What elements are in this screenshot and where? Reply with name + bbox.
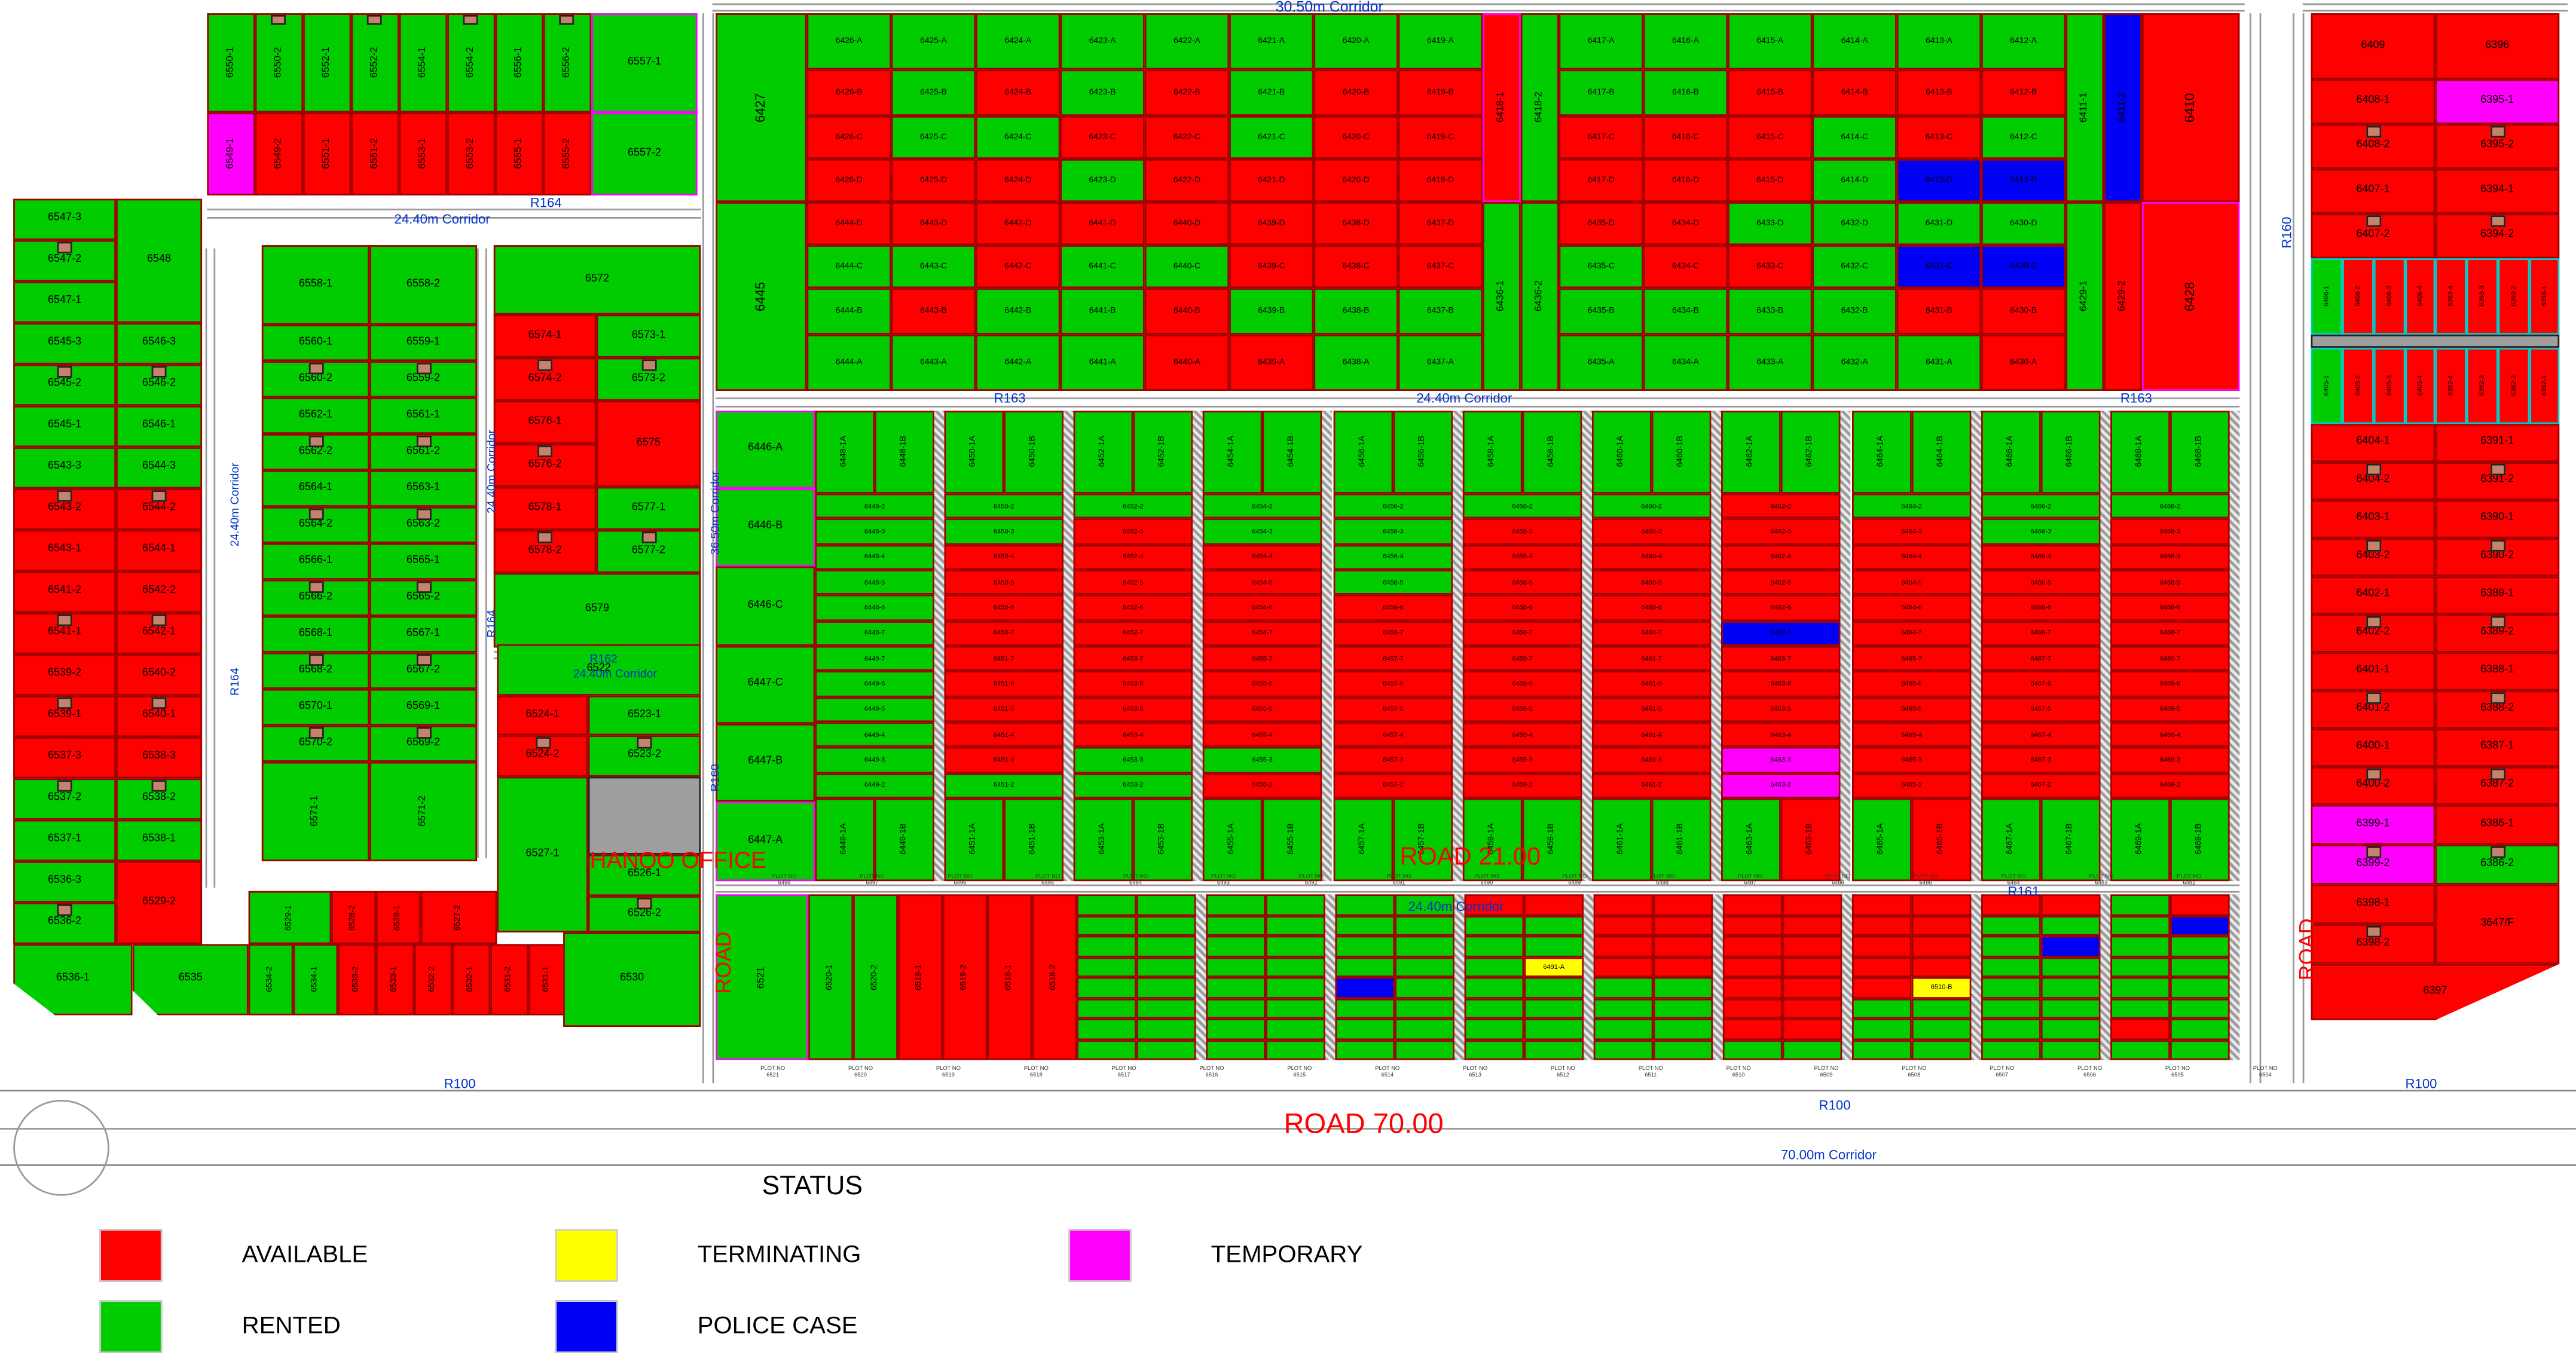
plot-6454-3: 6454-3: [1203, 519, 1322, 544]
substation-marker: [416, 436, 431, 446]
plot-6566-1: 6566-1: [262, 543, 369, 580]
plot-6402-2: 6402-2: [2311, 614, 2436, 653]
plot-6449-7: 6449-7: [815, 646, 934, 671]
plot-6465-6: 6465-6: [1852, 671, 1972, 696]
plot-6453-4: 6453-4: [1074, 722, 1193, 747]
plot-6532-1: 6532-1: [452, 944, 490, 1015]
substation-marker: [2490, 464, 2505, 475]
plot-6464-3: 6464-3: [1852, 519, 1972, 544]
plot-6450-1B: 6450-1B: [1004, 411, 1064, 494]
road-label: 24.40m Corridor: [1408, 901, 1504, 914]
plot-6463-3: 6463-3: [1721, 748, 1841, 773]
substation-marker: [152, 780, 167, 791]
plot-unlabeled: [1266, 998, 1325, 1019]
plot-no-bottom-label: PLOT NO 6520: [817, 1067, 904, 1080]
plot-6444-B: 6444-B: [806, 288, 891, 335]
plot-6469-7: 6469-7: [2110, 646, 2230, 671]
plot-6466-6: 6466-6: [1981, 595, 2101, 620]
plot-6438-B: 6438-B: [1313, 288, 1398, 335]
plot-6562-1: 6562-1: [262, 397, 369, 434]
plot-6449-4: 6449-4: [815, 722, 934, 747]
plot-unlabeled: [1266, 915, 1325, 936]
plot-6414-A: 6414-A: [1812, 13, 1896, 69]
plot-6537-1: 6537-1: [13, 820, 116, 861]
plot-6518-1: 6518-1: [988, 894, 1032, 1060]
corridor-hatch: [934, 411, 945, 881]
plot-6463-1A: 6463-1A: [1721, 799, 1781, 882]
plot-6424-B: 6424-B: [976, 69, 1060, 116]
road-label: 24.40m Corridor: [230, 463, 242, 546]
plot-6430-B: 6430-B: [1981, 288, 2065, 335]
plot-6456-7: 6456-7: [1334, 620, 1453, 646]
plot-unlabeled: [1912, 1018, 1972, 1039]
plot-unlabeled: [1912, 915, 1972, 936]
substation-marker: [2490, 692, 2505, 703]
plot-6389-1: 6389-1: [2435, 576, 2559, 614]
substation-marker: [535, 737, 550, 748]
plot-6463-2: 6463-2: [1721, 773, 1841, 798]
plot-6451-1A: 6451-1A: [944, 799, 1004, 882]
plot-unlabeled: [1524, 1018, 1584, 1039]
plot-6539-2: 6539-2: [13, 654, 116, 696]
substation-marker: [2366, 926, 2381, 937]
plot-6460-7: 6460-7: [1592, 620, 1712, 646]
substation-marker: [152, 366, 167, 377]
plot-unlabeled: [1912, 936, 1972, 957]
plot-unlabeled: [1266, 956, 1325, 977]
road-label: R100: [444, 1078, 476, 1091]
plot-6553-2: 6553-2: [447, 112, 495, 195]
plot-6433-B: 6433-B: [1728, 288, 1812, 335]
plot-6450-2: 6450-2: [944, 494, 1064, 519]
plot-no-bottom-label: PLOT NO 6510: [1695, 1067, 1783, 1080]
plot-6460-6: 6460-6: [1592, 595, 1712, 620]
substation-marker: [560, 15, 575, 26]
plot-6528-1: 6528-1: [376, 891, 421, 944]
plot-unlabeled: [2170, 894, 2230, 915]
plot-6574-2: 6574-2: [494, 358, 597, 401]
corridor-hatch: [2230, 894, 2240, 1060]
plot-6453-5: 6453-5: [1074, 697, 1193, 722]
plot-6405-3: 6405-3: [2374, 348, 2406, 424]
plot-unlabeled: [1594, 915, 1654, 936]
plot-6435-B: 6435-B: [1559, 288, 1643, 335]
corridor-hatch: [1454, 894, 1465, 1060]
plot-3647-F: 3647/F: [2435, 885, 2559, 964]
plot-6464-5: 6464-5: [1852, 570, 1972, 595]
plot-6557-1: 6557-1: [591, 13, 697, 112]
plot-unlabeled: [1852, 936, 1912, 957]
plot-6421-B: 6421-B: [1229, 69, 1313, 116]
plot-unlabeled: [1723, 956, 1783, 977]
temporary-swatch: [1068, 1228, 1131, 1281]
plot-6418-2: 6418-2: [1521, 13, 1559, 202]
plot-6408-1: 6408-1: [2311, 79, 2436, 124]
plot-6436-2: 6436-2: [1521, 202, 1559, 391]
plot-6445: 6445: [716, 202, 806, 391]
plot-6555-2: 6555-2: [543, 112, 591, 195]
road-label: ROAD 21.00: [1399, 845, 1541, 870]
plot-6548: 6548: [116, 199, 202, 323]
plot-no-bottom-label: PLOT NO 6508: [1870, 1067, 1958, 1080]
road-label: 24.40m Corridor: [1416, 393, 1512, 406]
plot-6462-2: 6462-2: [1721, 494, 1841, 519]
plot-6420-B: 6420-B: [1313, 69, 1398, 116]
plot-6411-2: 6411-2: [2104, 13, 2142, 202]
plot-6451-2: 6451-2: [944, 773, 1064, 798]
plot-6410: 6410: [2142, 13, 2239, 202]
corridor-hatch: [1713, 894, 1723, 1060]
legend-item-terminating: TERMINATING: [555, 1229, 1068, 1280]
plot-6468-7: 6468-7: [2110, 620, 2230, 646]
plot-6527-1: 6527-1: [497, 777, 588, 932]
plot-unlabeled: [1852, 998, 1912, 1019]
plot-6531-1: 6531-1: [528, 944, 567, 1015]
corridor-hatch: [1841, 411, 1851, 881]
plot-6413-A: 6413-A: [1897, 13, 1981, 69]
plot-unlabeled: [1594, 894, 1654, 915]
plot-unlabeled: [1136, 1039, 1196, 1060]
plot-no-bottom-label: PLOT NO 6511: [1607, 1067, 1695, 1080]
plot-unlabeled: [1783, 1039, 1842, 1060]
plot-6465-1A: 6465-1A: [1852, 799, 1912, 882]
plot-6532-2: 6532-2: [414, 944, 453, 1015]
plot-unlabeled: [1077, 936, 1136, 957]
plot-6431-D: 6431-D: [1897, 202, 1981, 245]
substation-marker: [152, 698, 167, 708]
plot-6570-2: 6570-2: [262, 726, 369, 762]
plot-6567-2: 6567-2: [369, 653, 477, 689]
plot-6461-6: 6461-6: [1592, 671, 1712, 696]
plot-no-top-label: PLOT NO 6498: [741, 874, 829, 888]
plot-6461-7: 6461-7: [1592, 646, 1712, 671]
plot-6416-A: 6416-A: [1643, 13, 1728, 69]
plot-6455-2: 6455-2: [1203, 773, 1322, 798]
plot-6571-2: 6571-2: [369, 762, 477, 861]
plot-6407-1: 6407-1: [2311, 169, 2436, 214]
substation-marker: [537, 445, 552, 456]
legend-title: STATUS: [762, 1173, 863, 1203]
plot-6568-1: 6568-1: [262, 616, 369, 653]
plot-unlabeled: [1653, 894, 1713, 915]
corridor-hatch: [1711, 411, 1721, 881]
plot-6437-D: 6437-D: [1398, 202, 1483, 245]
plot-unlabeled: [1077, 956, 1136, 977]
plot-6451-6: 6451-6: [944, 671, 1064, 696]
plot-6459-4: 6459-4: [1463, 722, 1582, 747]
plot-6454-1A: 6454-1A: [1203, 411, 1263, 494]
plot-6451-1B: 6451-1B: [1004, 799, 1064, 882]
plot-unlabeled: [1852, 915, 1912, 936]
plot-unlabeled: [1783, 936, 1842, 957]
plot-unlabeled: [1594, 977, 1654, 998]
plot-unlabeled: [1912, 998, 1972, 1019]
plot-6417-B: 6417-B: [1559, 69, 1643, 116]
plot-6406-2: 6406-2: [2342, 258, 2374, 334]
plot-6440-A: 6440-A: [1145, 335, 1229, 391]
legend-label: AVAILABLE: [242, 1241, 368, 1268]
plot-6543-1: 6543-1: [13, 530, 116, 571]
plot-6449-6: 6449-6: [815, 671, 934, 696]
corridor-hatch: [1453, 411, 1463, 881]
plot-6468-1A: 6468-1A: [2110, 411, 2170, 494]
plot-6557-2: 6557-2: [591, 112, 697, 195]
plot-no-top-label: PLOT NO 6484: [1970, 874, 2058, 888]
plot-no-top-label: PLOT NO 6493: [1179, 874, 1267, 888]
plot-6572: 6572: [494, 245, 701, 314]
plot-6438-A: 6438-A: [1313, 335, 1398, 391]
plot-6442-C: 6442-C: [976, 245, 1060, 288]
plot-6454-1B: 6454-1B: [1263, 411, 1322, 494]
substation-marker: [57, 780, 72, 791]
plot-6555-1: 6555-1: [496, 112, 543, 195]
plot-6450-5: 6450-5: [944, 570, 1064, 595]
plot-6439-B: 6439-B: [1229, 288, 1313, 335]
plot-6465-4: 6465-4: [1852, 722, 1972, 747]
plot-6529-2: 6529-2: [116, 861, 202, 944]
plot-6420-A: 6420-A: [1313, 13, 1398, 69]
plot-unlabeled: [1206, 1039, 1266, 1060]
substation-marker: [308, 582, 323, 592]
road-label: ROAD 70.00: [1284, 1110, 1444, 1138]
road-label: 24.40m Corridor: [487, 430, 499, 513]
plot-6405-1: 6405-1: [2311, 348, 2343, 424]
plot-6467-1B: 6467-1B: [2041, 799, 2101, 882]
plot-6432-C: 6432-C: [1812, 245, 1896, 288]
plot-6528-2: 6528-2: [331, 891, 376, 944]
plot-6450-4: 6450-4: [944, 545, 1064, 570]
plot-6565-2: 6565-2: [369, 580, 477, 616]
plot-6466-5: 6466-5: [1981, 570, 2101, 595]
plot-6426-D: 6426-D: [806, 159, 891, 202]
plot-6457-2: 6457-2: [1334, 773, 1453, 798]
substation-marker: [57, 242, 72, 253]
plot-6442-B: 6442-B: [976, 288, 1060, 335]
plot-unlabeled: [2170, 1018, 2230, 1039]
plot-no-bottom-label: PLOT NO 6504: [2221, 1067, 2309, 1080]
plot-6457-7: 6457-7: [1334, 646, 1453, 671]
plot-6533-2: 6533-2: [338, 944, 376, 1015]
plot-6542-2: 6542-2: [116, 571, 202, 613]
plot-unlabeled: [1981, 956, 2041, 977]
legend-item-temporary: TEMPORARY: [1068, 1229, 1565, 1280]
plot-6422-C: 6422-C: [1145, 116, 1229, 159]
plot-6453-1A: 6453-1A: [1074, 799, 1133, 882]
road-label: ROAD: [2296, 918, 2318, 980]
plot-6430-A: 6430-A: [1981, 335, 2065, 391]
plot-6407-2: 6407-2: [2311, 213, 2436, 258]
plot-6554-2: 6554-2: [447, 13, 495, 112]
plot-unlabeled: [2110, 936, 2170, 957]
road-label: R160: [711, 764, 722, 791]
substation-marker: [641, 359, 656, 370]
plot-6523-1: 6523-1: [588, 696, 701, 736]
plot-6560-1: 6560-1: [262, 325, 369, 361]
plot-unlabeled: [1783, 956, 1842, 977]
plot-6448-7: 6448-7: [815, 620, 934, 646]
plot-6444-C: 6444-C: [806, 245, 891, 288]
plot-unlabeled: [1912, 956, 1972, 977]
plot-unlabeled: [2110, 915, 2170, 936]
plot-unlabeled: [2110, 956, 2170, 977]
plot-unlabeled: [1653, 977, 1713, 998]
plot-unlabeled: [1653, 956, 1713, 977]
substation-marker: [308, 363, 323, 374]
plot-6434-B: 6434-B: [1643, 288, 1728, 335]
plot-unlabeled: [1395, 915, 1454, 936]
plot-unlabeled: [1206, 894, 1266, 915]
plot-6461-4: 6461-4: [1592, 722, 1712, 747]
plot-6452-2: 6452-2: [1074, 494, 1193, 519]
road-line: [206, 249, 216, 888]
plot-no-top-label: PLOT NO 6496: [916, 874, 1004, 888]
plot-6467-7: 6467-7: [1981, 646, 2101, 671]
plot-unlabeled: [2041, 936, 2101, 957]
plot-unlabeled: [1335, 915, 1395, 936]
plot-unlabeled: [2170, 977, 2230, 998]
plot-6457-4: 6457-4: [1334, 722, 1453, 747]
plot-6454-2: 6454-2: [1203, 494, 1322, 519]
plot-6416-C: 6416-C: [1643, 116, 1728, 159]
plot-6535: 6535: [133, 944, 249, 1015]
plot-unlabeled: [1266, 894, 1325, 915]
plot-6569-1: 6569-1: [369, 689, 477, 726]
plot-6576-1: 6576-1: [494, 401, 597, 444]
plot-unlabeled: [1981, 1018, 2041, 1039]
plot-6545-2: 6545-2: [13, 365, 116, 406]
plot-6420-C: 6420-C: [1313, 116, 1398, 159]
plot-6444-D: 6444-D: [806, 202, 891, 245]
plot-6419-B: 6419-B: [1398, 69, 1483, 116]
plot-6459-2: 6459-2: [1463, 773, 1582, 798]
plot-unlabeled: [1653, 1018, 1713, 1039]
plot-no-top-label: PLOT NO 6495: [1004, 874, 1092, 888]
plot-6425-B: 6425-B: [891, 69, 976, 116]
road-label: ROAD: [713, 932, 734, 994]
plot-6524-2: 6524-2: [497, 735, 588, 776]
substation-marker: [537, 531, 552, 542]
plot-6577-1: 6577-1: [597, 487, 701, 530]
plot-6401-1: 6401-1: [2311, 653, 2436, 691]
plot-6421-A: 6421-A: [1229, 13, 1313, 69]
plot-6393-3: 6393-3: [2467, 258, 2498, 334]
plot-unlabeled: [1653, 1039, 1713, 1060]
plot-6549-2: 6549-2: [255, 112, 303, 195]
plot-6455-6: 6455-6: [1203, 671, 1322, 696]
plot-unlabeled: [1465, 956, 1524, 977]
plot-6546-2: 6546-2: [116, 365, 202, 406]
plot-6424-C: 6424-C: [976, 116, 1060, 159]
plot-6523-2: 6523-2: [588, 735, 701, 776]
plot-6393-2: 6393-2: [2498, 258, 2530, 334]
substation-marker: [57, 698, 72, 708]
plot-6467-5: 6467-5: [1981, 697, 2101, 722]
plot-6546-1: 6546-1: [116, 406, 202, 447]
legend-item-rented: RENTED: [99, 1300, 555, 1351]
plot-6466-7: 6466-7: [1981, 620, 2101, 646]
plot-6392-4: 6392-4: [2435, 348, 2467, 424]
plot-6459-7: 6459-7: [1463, 646, 1582, 671]
plot-6566-2: 6566-2: [262, 580, 369, 616]
plot-6460-1A: 6460-1A: [1592, 411, 1652, 494]
plot-6431-B: 6431-B: [1897, 288, 1981, 335]
plot-6469-1B: 6469-1B: [2170, 799, 2230, 882]
corridor-hatch: [2101, 894, 2111, 1060]
plot-6455-5: 6455-5: [1203, 697, 1322, 722]
plot-6405-4: 6405-4: [2405, 348, 2435, 424]
substation-marker: [308, 509, 323, 519]
plot-6466-1B: 6466-1B: [2041, 411, 2101, 494]
plot-6452-1B: 6452-1B: [1133, 411, 1193, 494]
plot-6400-1: 6400-1: [2311, 729, 2436, 767]
plot-6538-1: 6538-1: [116, 820, 202, 861]
plot-6573-1: 6573-1: [597, 314, 701, 357]
substation-marker: [2366, 540, 2381, 550]
substation-marker: [416, 363, 431, 374]
corridor-hatch: [1196, 894, 1206, 1060]
substation-marker: [368, 15, 383, 26]
plot-6439-D: 6439-D: [1229, 202, 1313, 245]
plot-6449-1B: 6449-1B: [875, 799, 934, 882]
plot-6448-3: 6448-3: [815, 519, 934, 544]
plot-6441-B: 6441-B: [1060, 288, 1144, 335]
plot-6390-2: 6390-2: [2435, 539, 2559, 577]
plot-6562-2: 6562-2: [262, 434, 369, 470]
substation-marker: [2366, 215, 2381, 226]
plot-6422-D: 6422-D: [1145, 159, 1229, 202]
plot-unlabeled: [1524, 894, 1584, 915]
plot-6536-1: 6536-1: [13, 944, 133, 1015]
plot-no-top-label: PLOT NO 6487: [1706, 874, 1794, 888]
legend-item-available: AVAILABLE: [99, 1229, 555, 1280]
plot-6444-A: 6444-A: [806, 335, 891, 391]
plot-6454-5: 6454-5: [1203, 570, 1322, 595]
plot-unlabeled: [1465, 915, 1524, 936]
substation-marker: [2490, 769, 2505, 779]
plot-6579: 6579: [494, 573, 701, 648]
road-label: R163: [994, 393, 1026, 406]
plot-unlabeled: [1981, 936, 2041, 957]
substation-marker: [57, 490, 72, 501]
plot-unlabeled: [1335, 936, 1395, 957]
substation-marker: [152, 614, 167, 625]
plot-unlabeled: [1077, 1018, 1136, 1039]
plot-6450-6: 6450-6: [944, 595, 1064, 620]
plot-6541-2: 6541-2: [13, 571, 116, 613]
plot-6458-1B: 6458-1B: [1523, 411, 1582, 494]
plot-6461-3: 6461-3: [1592, 748, 1712, 773]
plot-6564-2: 6564-2: [262, 507, 369, 543]
legend-label: POLICE CASE: [698, 1313, 858, 1339]
plot-6440-B: 6440-B: [1145, 288, 1229, 335]
plot-no-top-label: PLOT NO 6494: [1092, 874, 1179, 888]
plot-6469-5: 6469-5: [2110, 697, 2230, 722]
plot-6447-B: 6447-B: [716, 724, 815, 802]
plot-6463-4: 6463-4: [1721, 722, 1841, 747]
plot-6437-C: 6437-C: [1398, 245, 1483, 288]
plot-6451-3: 6451-3: [944, 748, 1064, 773]
plot-6455-7: 6455-7: [1203, 646, 1322, 671]
plot-no-bottom-label: PLOT NO 6512: [1519, 1067, 1607, 1080]
plot-no-bottom-label: PLOT NO 6513: [1431, 1067, 1519, 1080]
plot-6425-A: 6425-A: [891, 13, 976, 69]
plot-6387-2: 6387-2: [2435, 767, 2559, 805]
rented-swatch: [99, 1299, 162, 1353]
plot-6461-2: 6461-2: [1592, 773, 1712, 798]
plot-6408-2: 6408-2: [2311, 124, 2436, 169]
plot-unlabeled: [1783, 1018, 1842, 1039]
plot-6469-1A: 6469-1A: [2110, 799, 2170, 882]
